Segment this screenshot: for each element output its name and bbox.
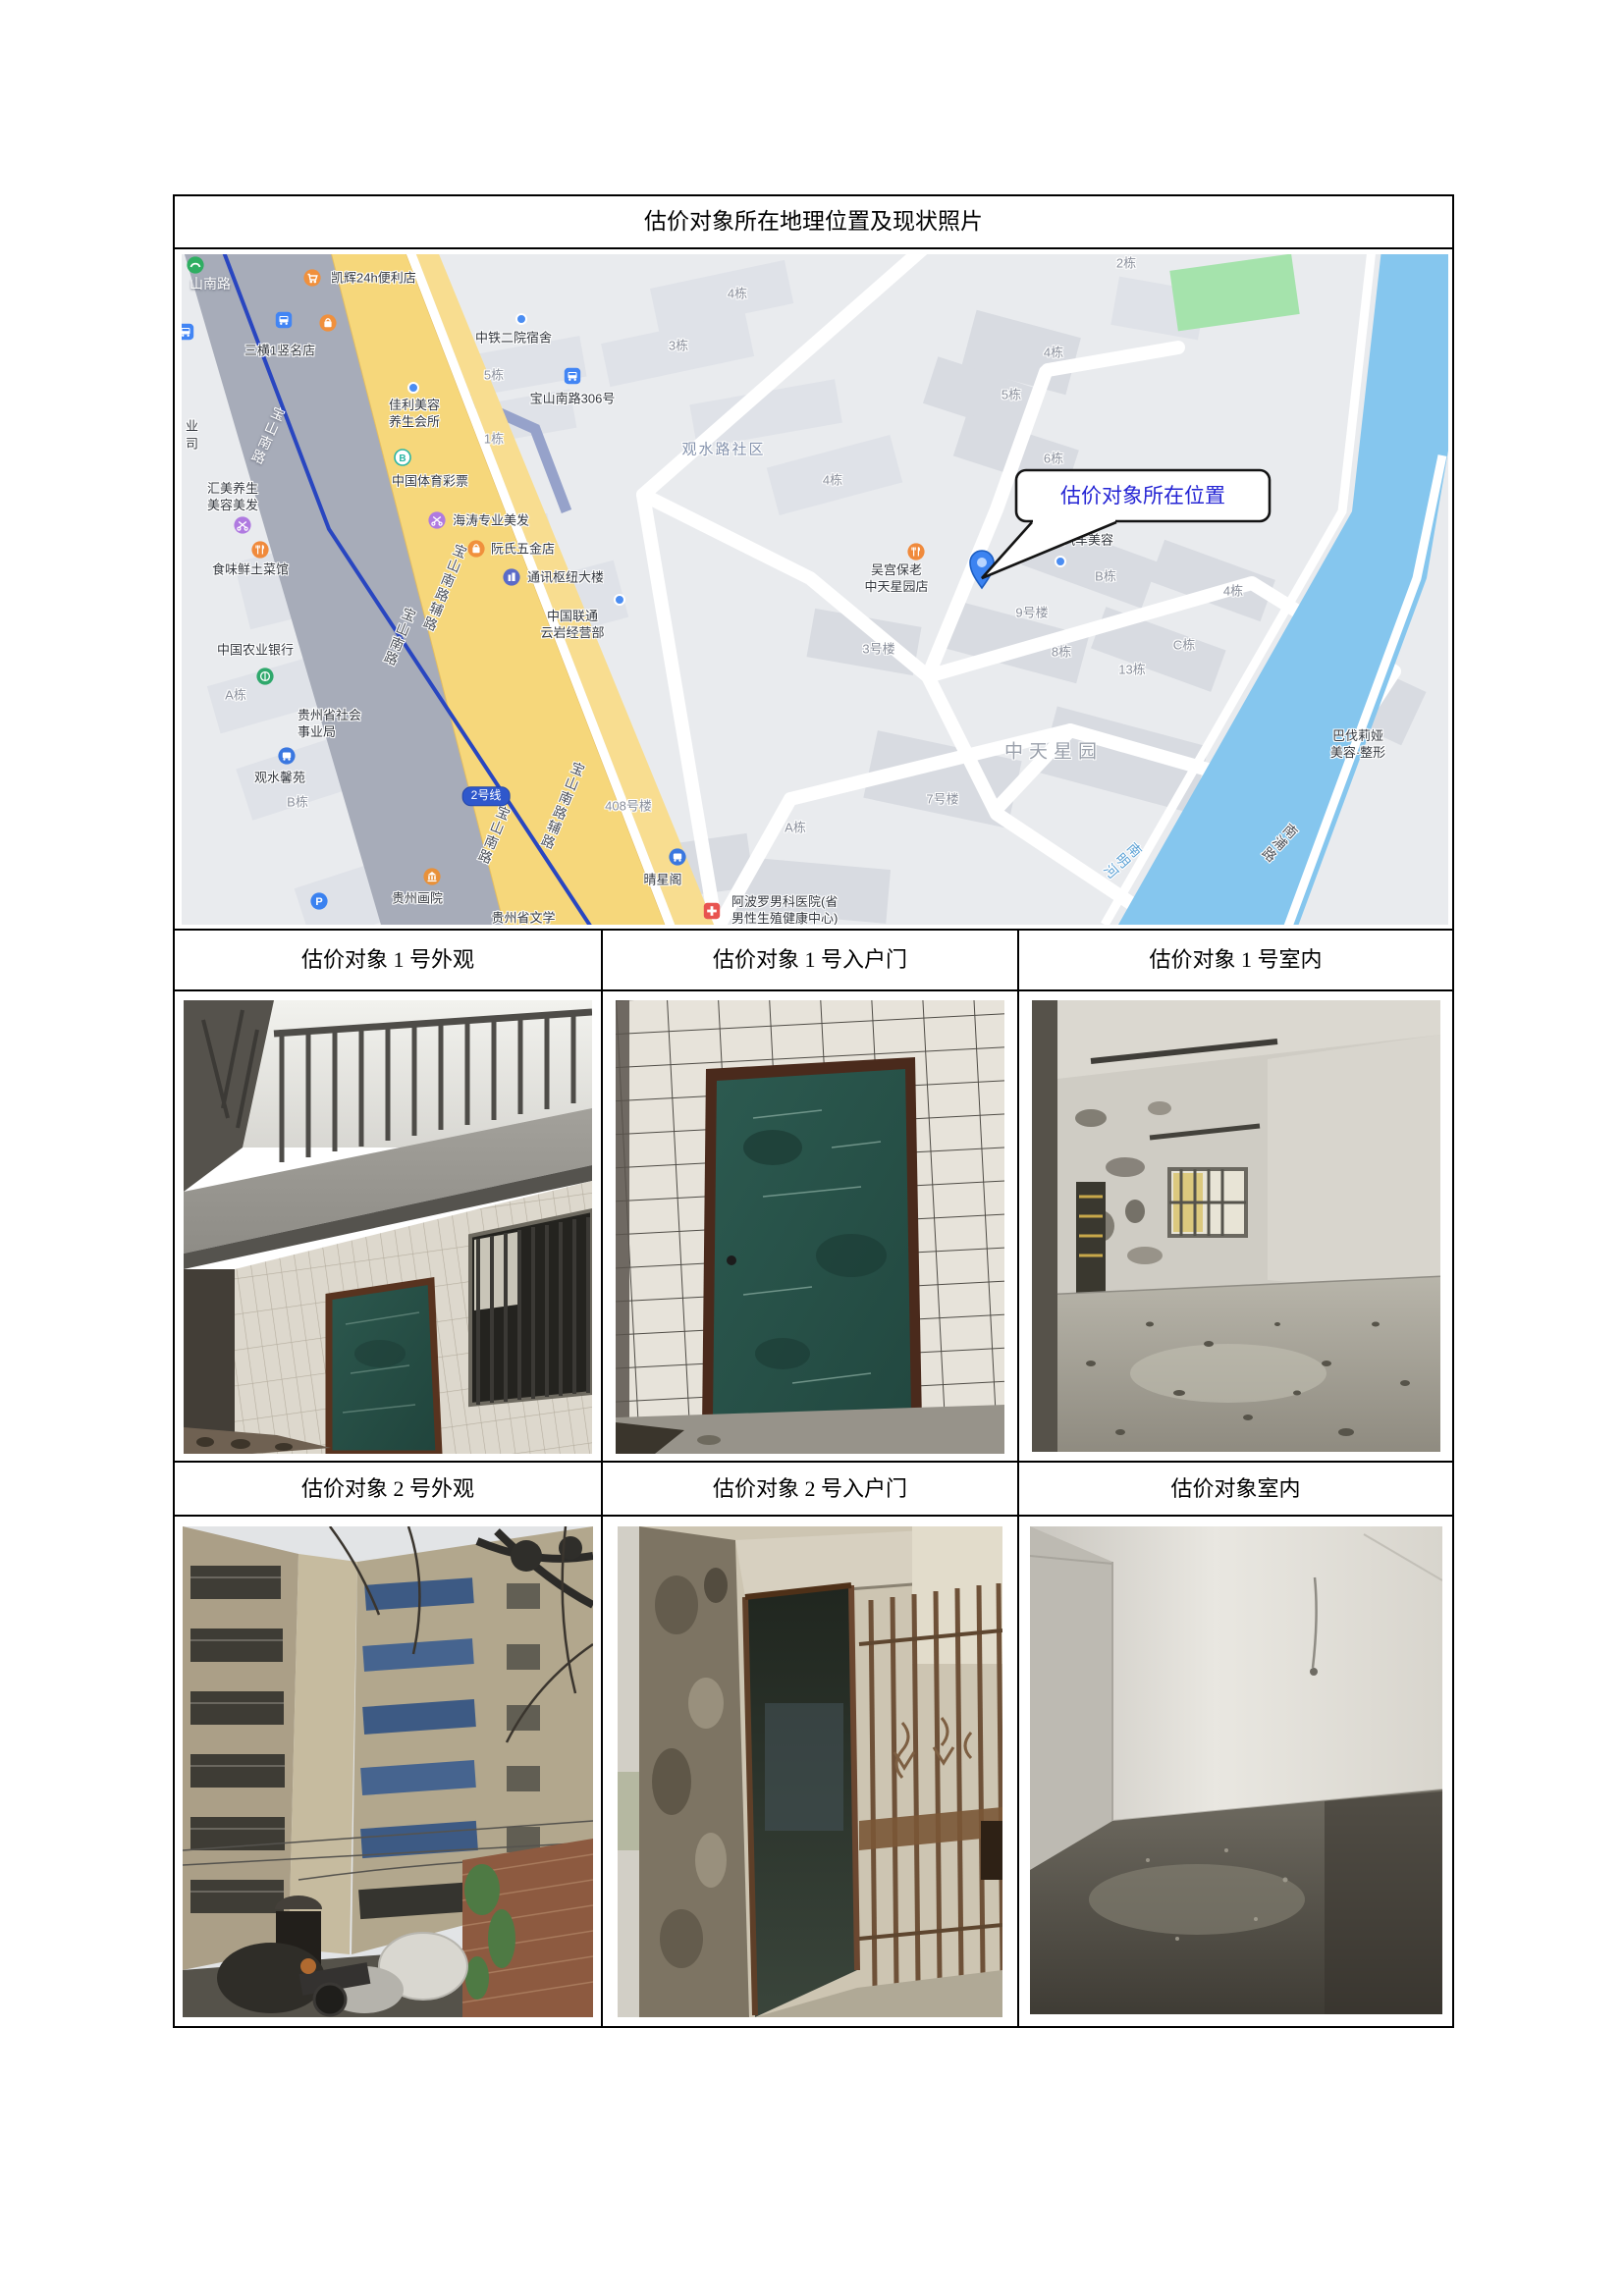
map-label: 贵州画院 — [392, 891, 443, 908]
bus-icon — [182, 323, 194, 341]
busstop-icon — [278, 747, 296, 765]
map-label: 6栋 — [1044, 452, 1063, 468]
map-label: 4栋 — [1044, 346, 1063, 362]
map-label: 宝山南路辅路 — [537, 759, 589, 853]
bag-icon — [467, 540, 485, 558]
map-label: 观水路社区 — [681, 440, 765, 459]
map-label: 业 — [186, 419, 198, 436]
map-label: 司 — [186, 437, 198, 454]
map-label: 中铁二院宿舍 — [475, 331, 552, 347]
map-label: 13栋 — [1118, 663, 1145, 679]
map-label: 三横1竖名店 — [244, 344, 315, 360]
photo-row-1 — [175, 991, 1452, 1463]
map-label: 1栋 — [484, 432, 504, 449]
metro-icon — [187, 256, 204, 274]
photo-obj2-exterior-image — [183, 1526, 593, 2017]
fork-icon — [251, 541, 269, 559]
map-label: 3栋 — [669, 339, 688, 355]
header-obj2-interior: 估价对象室内 — [1017, 1463, 1452, 1515]
photo-location-table: 估价对象所在地理位置及现状照片 — [173, 194, 1454, 2028]
scis-icon — [428, 511, 446, 529]
map-label: 贵州省社会 事业局 — [298, 708, 361, 741]
photo-obj1-door-image — [616, 1000, 1004, 1454]
map-label: 宝山南路 — [247, 403, 290, 468]
document-page: 估价对象所在地理位置及现状照片 — [0, 0, 1624, 2296]
map-label: A栋 — [785, 821, 806, 837]
map-label: B栋 — [287, 795, 308, 812]
photo-obj2-door-image — [618, 1526, 1002, 2017]
busstop-icon — [669, 848, 686, 866]
map-label: 山南路 — [189, 275, 231, 293]
map-label: 观水馨苑 — [254, 771, 305, 787]
bank-icon — [256, 667, 274, 685]
map-label: 3号楼 — [862, 642, 894, 659]
map-label: 8栋 — [1052, 645, 1071, 662]
bus-icon — [275, 311, 293, 329]
bag-icon — [319, 314, 337, 332]
mb-icon — [394, 449, 411, 466]
photo-obj2-interior-image — [1030, 1526, 1442, 2014]
map-label: 4栋 — [728, 287, 747, 303]
map-label: 宝山南路辅路 — [419, 541, 471, 635]
map-label: 阮氏五金店 — [491, 542, 555, 559]
dot-icon — [513, 310, 530, 328]
map-label: A栋 — [225, 688, 246, 705]
map-label: 海涛专业美发 — [453, 513, 529, 530]
map-label: B栋 — [1095, 569, 1116, 586]
map-labels-layer: 山南路凯辉24h便利店三横1竖名店中铁二院宿舍5栋宝山南路306号佳利美容 养生… — [182, 254, 1448, 925]
map-label: 吴宫保老 中天星园店 — [864, 562, 928, 596]
header-obj2-exterior: 估价对象 2 号外观 — [175, 1463, 601, 1515]
map-label: 宝山南路 — [474, 803, 514, 868]
map-label: 宝山南路 — [380, 605, 420, 669]
dot-icon — [1052, 553, 1069, 570]
map-label: 9号楼 — [1015, 606, 1048, 622]
map-label: 5栋 — [484, 368, 504, 385]
map-label: 凯辉24h便利店 — [331, 271, 416, 288]
location-map: 山南路凯辉24h便利店三横1竖名店中铁二院宿舍5栋宝山南路306号佳利美容 养生… — [182, 254, 1448, 925]
map-label: 408号楼 — [605, 799, 652, 816]
map-label: 南浦路 — [1257, 820, 1302, 867]
photo-row-2 — [175, 1517, 1452, 2026]
map-label: 阿波罗男科医院(省 男性生殖健康中心) — [731, 894, 838, 925]
fork-icon — [907, 543, 925, 561]
dot-icon — [405, 379, 422, 397]
map-label: 南明河 — [1099, 838, 1146, 883]
map-label: 2号线 — [462, 786, 511, 806]
map-label: 7号楼 — [926, 792, 958, 809]
map-label: 巴伐莉娅 美容·整形 — [1330, 728, 1385, 762]
photo-obj1-interior — [1017, 991, 1452, 1461]
header-obj1-door: 估价对象 1 号入户门 — [601, 931, 1017, 989]
bld-icon — [503, 568, 520, 586]
map-label: 中国体育彩票 — [392, 474, 468, 491]
map-label: 通讯枢纽大楼 — [527, 570, 604, 587]
map-label: 星园汽车美容 — [1037, 533, 1113, 550]
map-label: 中天星园 — [1004, 741, 1103, 766]
map-label: 佳利美容 养生会所 — [389, 398, 440, 431]
map-label: 2栋 — [1116, 256, 1136, 273]
callout-label: 估价对象所在位置 — [1016, 470, 1270, 521]
map-row: 山南路凯辉24h便利店三横1竖名店中铁二院宿舍5栋宝山南路306号佳利美容 养生… — [175, 249, 1452, 931]
header-row-1: 估价对象 1 号外观 估价对象 1 号入户门 估价对象 1 号室内 — [175, 931, 1452, 991]
scis-icon — [234, 516, 251, 534]
p-icon — [310, 892, 328, 910]
photo-obj1-door — [601, 991, 1017, 1461]
photo-obj2-exterior — [175, 1517, 601, 2026]
map-label: 汇美养生 美容美发 — [207, 481, 258, 514]
photo-obj1-exterior — [175, 991, 601, 1461]
map-label: C栋 — [1173, 638, 1195, 655]
header-row-2: 估价对象 2 号外观 估价对象 2 号入户门 估价对象室内 — [175, 1463, 1452, 1517]
map-label: 4栋 — [823, 473, 842, 490]
photo-obj1-interior-image — [1032, 1000, 1440, 1452]
header-obj1-interior: 估价对象 1 号室内 — [1017, 931, 1452, 989]
map-label: 中国农业银行 — [217, 643, 294, 660]
table-title: 估价对象所在地理位置及现状照片 — [175, 196, 1452, 249]
cross-icon — [703, 902, 721, 920]
photo-obj1-exterior-image — [184, 1000, 592, 1454]
photo-obj2-interior — [1017, 1517, 1452, 2026]
map-label: 5栋 — [1001, 388, 1021, 404]
map-label: 4栋 — [1223, 584, 1243, 601]
bus-icon — [564, 367, 581, 385]
header-obj1-exterior: 估价对象 1 号外观 — [175, 931, 601, 989]
map-label: 食味鲜土菜馆 — [212, 562, 289, 579]
dot-icon — [611, 591, 628, 609]
map-label: 贵州省文学 — [491, 911, 555, 925]
map-label: 宝山南路306号 — [530, 392, 616, 408]
photo-obj2-door — [601, 1517, 1017, 2026]
map-label: 中国联通 云岩经营部 — [540, 609, 604, 642]
map-label: 晴星阁 — [643, 873, 681, 889]
museum-icon — [423, 868, 441, 885]
header-obj2-door: 估价对象 2 号入户门 — [601, 1463, 1017, 1515]
cart-icon — [303, 269, 321, 287]
